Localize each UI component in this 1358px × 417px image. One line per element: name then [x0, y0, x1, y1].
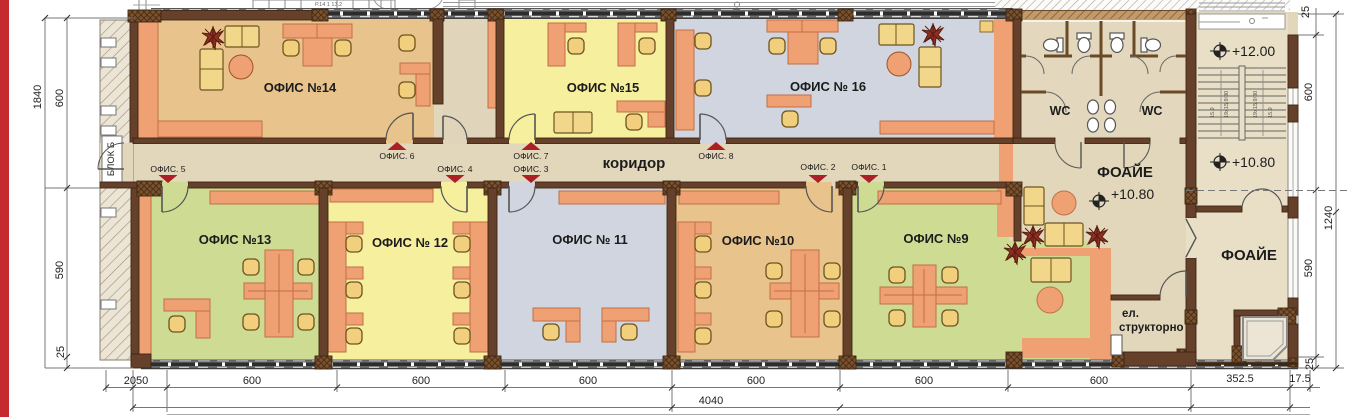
- svg-text:ОФИС. 2: ОФИС. 2: [800, 162, 835, 172]
- svg-text:WC: WC: [1050, 104, 1071, 118]
- svg-text:590: 590: [54, 261, 66, 279]
- svg-text:15.9: 15.9: [1210, 107, 1216, 118]
- svg-text:WC: WC: [1142, 104, 1163, 118]
- svg-text:ОФИС № 16: ОФИС № 16: [790, 79, 866, 94]
- svg-text:25: 25: [1300, 6, 1312, 18]
- svg-text:ОФИС. 3: ОФИС. 3: [513, 164, 548, 174]
- svg-text:ОФИС №13: ОФИС №13: [199, 232, 272, 247]
- svg-text:1840: 1840: [32, 85, 44, 109]
- svg-text:600: 600: [412, 375, 430, 387]
- svg-text:ФОАЙЕ: ФОАЙЕ: [1221, 246, 1277, 264]
- svg-text:ОФИС. 1: ОФИС. 1: [851, 162, 886, 172]
- svg-text:БЛОК Б: БЛОК Б: [106, 142, 117, 176]
- svg-text:ОФИС № 12: ОФИС № 12: [372, 235, 448, 250]
- svg-text:600: 600: [1090, 375, 1108, 387]
- svg-text:25: 25: [55, 346, 67, 358]
- svg-text:ФОАЙЕ: ФОАЙЕ: [1097, 163, 1153, 181]
- svg-text:ОФИС №10: ОФИС №10: [722, 233, 795, 248]
- svg-text:ОФИС № 11: ОФИС № 11: [552, 232, 627, 247]
- svg-text:19x15.9/30: 19x15.9/30: [1253, 91, 1259, 118]
- svg-text:ел.: ел.: [1122, 308, 1139, 320]
- svg-text:600: 600: [1303, 83, 1315, 101]
- svg-text:коридор: коридор: [603, 155, 666, 172]
- svg-text:600: 600: [915, 375, 933, 387]
- svg-text:+12.00: +12.00: [1232, 43, 1275, 59]
- svg-text:15.9: 15.9: [1268, 107, 1274, 118]
- svg-text:Р.14 1 13.2: Р.14 1 13.2: [315, 2, 342, 8]
- svg-text:+10.80: +10.80: [1111, 186, 1154, 202]
- svg-text:352.5: 352.5: [1226, 373, 1254, 385]
- svg-text:590: 590: [1303, 259, 1315, 277]
- svg-text:ОФИС. 4: ОФИС. 4: [437, 164, 472, 174]
- svg-text:структорно: структорно: [1119, 322, 1184, 334]
- svg-text:+10.80: +10.80: [1232, 154, 1275, 170]
- svg-text:ОФИС. 8: ОФИС. 8: [698, 151, 733, 161]
- svg-text:25: 25: [1304, 358, 1316, 370]
- svg-text:600: 600: [579, 375, 597, 387]
- svg-text:ОФИС. 5: ОФИС. 5: [150, 164, 185, 174]
- svg-text:ОФИС №9: ОФИС №9: [903, 231, 968, 246]
- svg-text:4040: 4040: [699, 395, 723, 407]
- svg-text:600: 600: [54, 89, 66, 107]
- svg-text:ОФИС №15: ОФИС №15: [567, 80, 640, 95]
- svg-text:ОФИС №14: ОФИС №14: [264, 80, 337, 95]
- svg-text:2050: 2050: [124, 375, 148, 387]
- svg-text:19x15.9/30: 19x15.9/30: [1224, 91, 1230, 118]
- svg-text:1240: 1240: [1323, 206, 1335, 230]
- svg-text:600: 600: [243, 375, 261, 387]
- svg-text:600: 600: [747, 375, 765, 387]
- svg-text:17.5: 17.5: [1289, 373, 1310, 385]
- svg-text:ОФИС. 6: ОФИС. 6: [379, 151, 414, 161]
- svg-text:ОФИС. 7: ОФИС. 7: [513, 151, 548, 161]
